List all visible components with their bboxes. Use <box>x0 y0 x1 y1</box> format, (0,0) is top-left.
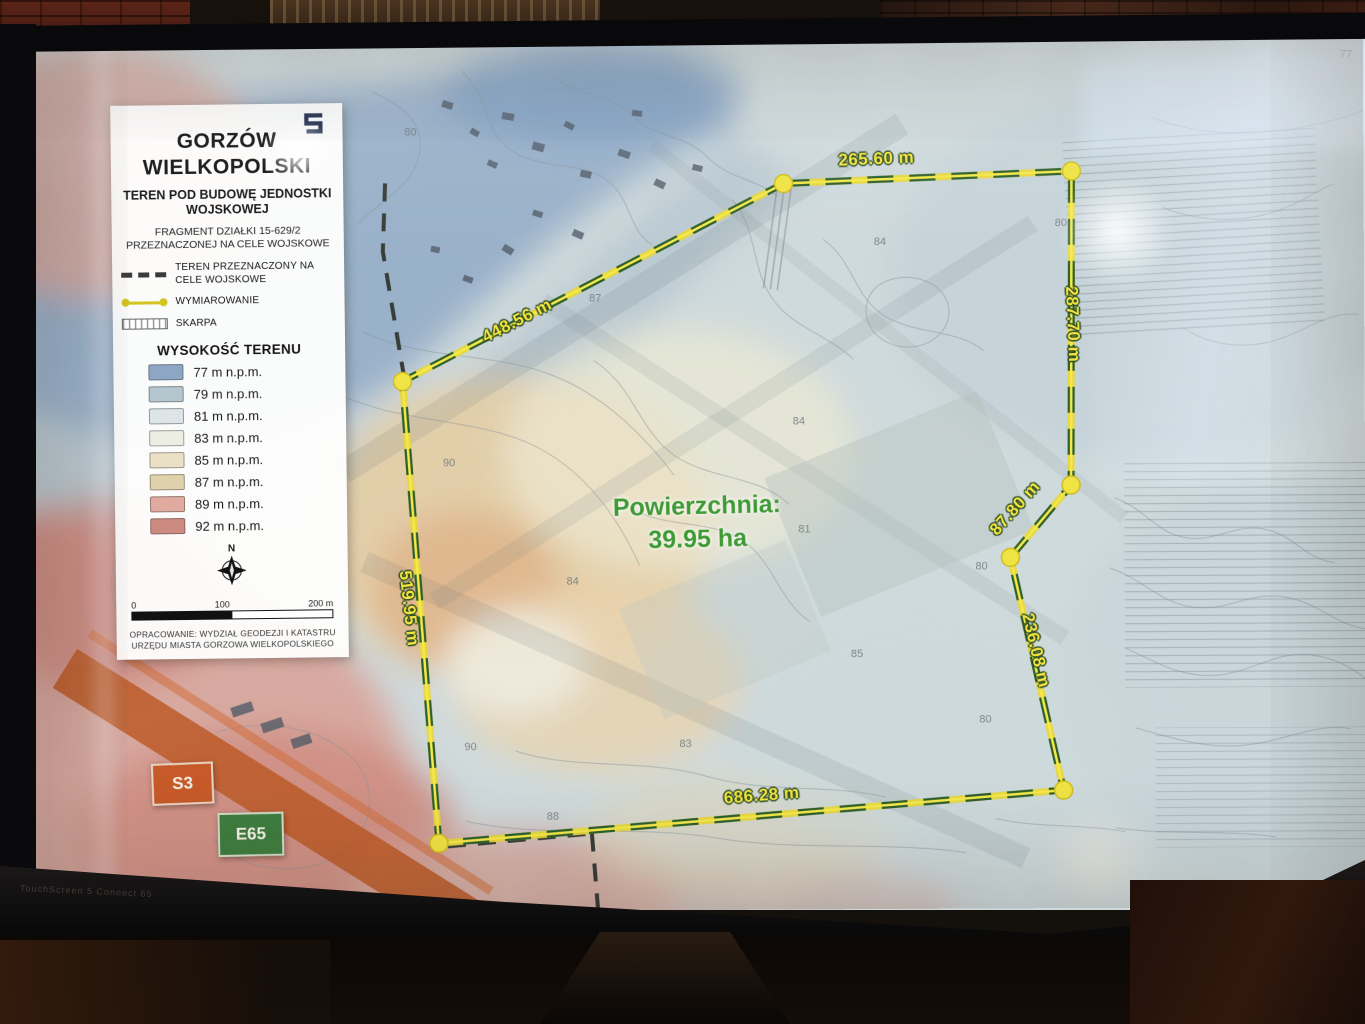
compass-icon <box>216 554 248 586</box>
contour-label: 77 <box>1340 49 1352 61</box>
elevation-swatch <box>150 496 185 512</box>
contour-label: 81 <box>798 523 810 535</box>
map-legend-card: GORZÓW WIELKOPOLSKI TEREN POD BUDOWĘ JED… <box>110 103 349 660</box>
road-badge-e65: E65 <box>217 812 284 857</box>
scale-bar-empty <box>232 610 332 618</box>
scale-start: 0 <box>131 601 136 611</box>
contour-label: 80 <box>404 126 416 138</box>
elevation-label: 79 m n.p.m. <box>194 386 263 402</box>
contour-label: 80 <box>979 713 991 725</box>
contour-label: 80 <box>975 560 987 572</box>
contour-label: 80 <box>1055 217 1067 229</box>
elevation-swatch <box>150 474 185 490</box>
elevation-row: 77 m n.p.m. <box>122 362 336 381</box>
room-photo: 265.60 m 287.70 m 87.80 m 236.08 m 686.2… <box>0 0 1365 1024</box>
legend-item-dimensioning: WYMIAROWANIE <box>121 294 335 309</box>
dimension-label-north: 265.60 m <box>838 148 915 171</box>
elevation-label: 83 m n.p.m. <box>194 430 263 446</box>
map-canvas: 265.60 m 287.70 m 87.80 m 236.08 m 686.2… <box>34 30 1365 910</box>
scarp-hatch-icon <box>122 318 168 330</box>
elevation-swatch <box>150 518 185 534</box>
elevation-label: 85 m n.p.m. <box>194 452 263 468</box>
floor-highlight-left <box>0 940 330 1024</box>
legend-label: WYMIAROWANIE <box>175 295 259 309</box>
road-badge-s3: S3 <box>151 761 215 805</box>
parcel-description: FRAGMENT DZIAŁKI 15-629/2 PRZEZNACZONEJ … <box>121 224 335 254</box>
dimension-line-icon <box>122 298 168 307</box>
area-annotation: Powierzchnia: 39.95 ha <box>592 488 803 558</box>
floor-highlight-right <box>1130 880 1365 1024</box>
elevation-label: 92 m n.p.m. <box>195 518 264 534</box>
dashed-line-icon <box>121 272 167 278</box>
contour-label: 90 <box>464 741 476 753</box>
contour-label: 90 <box>443 457 455 469</box>
map-attribution: OPRACOWANIE: WYDZIAŁ GEODEZJI I KATASTRU… <box>126 627 340 652</box>
scale-mid: 100 <box>215 600 230 610</box>
contour-label: 84 <box>567 576 579 588</box>
elevation-row: 87 m n.p.m. <box>124 472 338 491</box>
elevation-label: 77 m n.p.m. <box>193 364 262 380</box>
contour-label: 84 <box>793 415 805 427</box>
contour-label: 85 <box>851 648 863 660</box>
legend-label: SKARPA <box>176 317 217 330</box>
elevation-row: 79 m n.p.m. <box>123 384 337 403</box>
contour-label: 88 <box>547 811 559 823</box>
tv-screen[interactable]: 265.60 m 287.70 m 87.80 m 236.08 m 686.2… <box>34 30 1365 910</box>
scale-end: 200 m <box>308 598 333 608</box>
contour-label: 83 <box>679 738 691 750</box>
scale-bar: 0 100 200 m <box>131 598 333 620</box>
legend-item-military-area: TEREN PRZEZNACZONY NA CELE WOJSKOWE <box>121 260 335 288</box>
area-value: 39.95 ha <box>592 520 803 557</box>
elevation-row: 83 m n.p.m. <box>123 428 337 447</box>
elevation-swatch <box>149 386 184 402</box>
road-badge-s3-label: S3 <box>172 773 194 794</box>
elevation-row: 85 m n.p.m. <box>123 450 337 469</box>
tv-bezel-left <box>0 24 36 874</box>
elevation-row: 81 m n.p.m. <box>123 406 337 425</box>
elevation-row: 92 m n.p.m. <box>124 516 338 535</box>
elevation-row: 89 m n.p.m. <box>124 494 338 513</box>
legend-item-scarp: SKARPA <box>122 316 336 331</box>
dimension-label-east-upper: 287.70 m <box>1061 286 1084 363</box>
area-label: Powierzchnia: <box>592 488 803 525</box>
elevation-swatch <box>149 430 184 446</box>
legend-label: TEREN PRZEZNACZONY NA CELE WOJSKOWE <box>175 260 335 287</box>
road-badge-e65-label: E65 <box>236 824 267 845</box>
elevation-legend-title: WYSOKOŚĆ TERENU <box>122 341 336 359</box>
elevation-label: 89 m n.p.m. <box>195 496 264 512</box>
glare-on-card <box>256 129 343 176</box>
contour-label: 87 <box>589 293 601 305</box>
elevation-swatch <box>149 408 184 424</box>
elevation-swatch <box>149 452 184 468</box>
map-subtitle: TEREN POD BUDOWĘ JEDNOSTKI WOJSKOWEJ <box>120 186 334 220</box>
elevation-label: 81 m n.p.m. <box>194 408 263 424</box>
contour-label: 84 <box>874 236 886 248</box>
elevation-label: 87 m n.p.m. <box>195 474 264 490</box>
elevation-swatch <box>148 364 183 380</box>
compass-rose: N <box>125 542 340 593</box>
scale-bar-filled <box>132 611 232 619</box>
